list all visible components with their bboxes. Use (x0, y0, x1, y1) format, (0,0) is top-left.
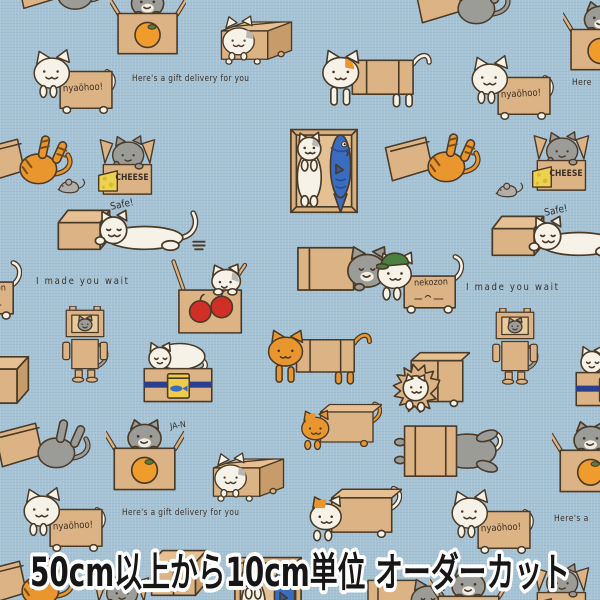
fabric-print-text: JA-N (169, 420, 186, 432)
robot-box-cat (60, 306, 110, 384)
safe-sliding-cat: Safe! (52, 198, 210, 255)
fabric-print-text: CHEESE (550, 169, 583, 179)
cat-with-orange-box (552, 420, 600, 498)
cat-bursting-through-box (388, 350, 470, 414)
box (0, 352, 34, 407)
cat-sleeping-on-can-box (570, 338, 600, 409)
gift-box-cat-and-fish (288, 124, 360, 216)
jan-surprise-cat: JA-N (106, 418, 184, 496)
cat-diving-into-box (0, 418, 92, 479)
fabric-print-text: nekozon (413, 278, 447, 289)
box-body-cat (266, 326, 372, 390)
delivery-box-cat (214, 13, 296, 69)
orange-cat-in-box (298, 400, 382, 454)
gift-delivery-text: Here's a gift delivery for you (132, 74, 249, 84)
i-made-you-wait-text: I made you wait (466, 282, 560, 293)
caption-text: 50cm以上から10cm単位 オーダーカット (30, 550, 570, 596)
mouse (494, 180, 524, 200)
cheese-box-cat: CHEESE (528, 128, 594, 194)
fabric-print-text: nekozon (0, 284, 6, 295)
cat-sleeping-on-can-box (138, 334, 218, 405)
cheese-box-cat: CHEESE (94, 132, 160, 198)
nekozon-box-cat: nekozon (376, 246, 464, 315)
gift-delivery-text-partial: Here's a (554, 514, 589, 524)
cat-diving-into-box (382, 132, 482, 193)
robot-box-cat (490, 308, 540, 386)
calico-box-cat (306, 484, 402, 546)
cat-under-box (392, 424, 504, 480)
fabric-print-text: CHEESE (116, 173, 149, 183)
safe-sliding-cat: Safe! (486, 204, 600, 261)
box-body-cat (320, 46, 432, 113)
i-made-you-wait-text: I made you wait (36, 276, 130, 287)
cat-diving-into-box (0, 134, 74, 195)
delivery-box-cat (206, 450, 288, 506)
nyaohoo-box-cat: nyaöhoo! (468, 54, 560, 121)
nekozon-box-cat: nekozon (0, 252, 22, 321)
cat-diving-into-box (14, 0, 109, 20)
cat-diving-into-box (412, 0, 512, 35)
nyaohoo-box-cat: nyaöhoo! (30, 48, 122, 115)
product-image: nyaöhoo!nyaöhoo!CHEESECHEESESafe!Safe!ne… (0, 0, 600, 600)
order-cut-caption: 50cm以上から10cm単位 オーダーカット (0, 542, 600, 600)
gift-delivery-text: Here's a gift delivery for you (122, 508, 239, 518)
cat-with-orange-box (563, 0, 600, 76)
apple-box-cat (170, 258, 252, 340)
gift-delivery-text-partial: Here (572, 78, 592, 88)
